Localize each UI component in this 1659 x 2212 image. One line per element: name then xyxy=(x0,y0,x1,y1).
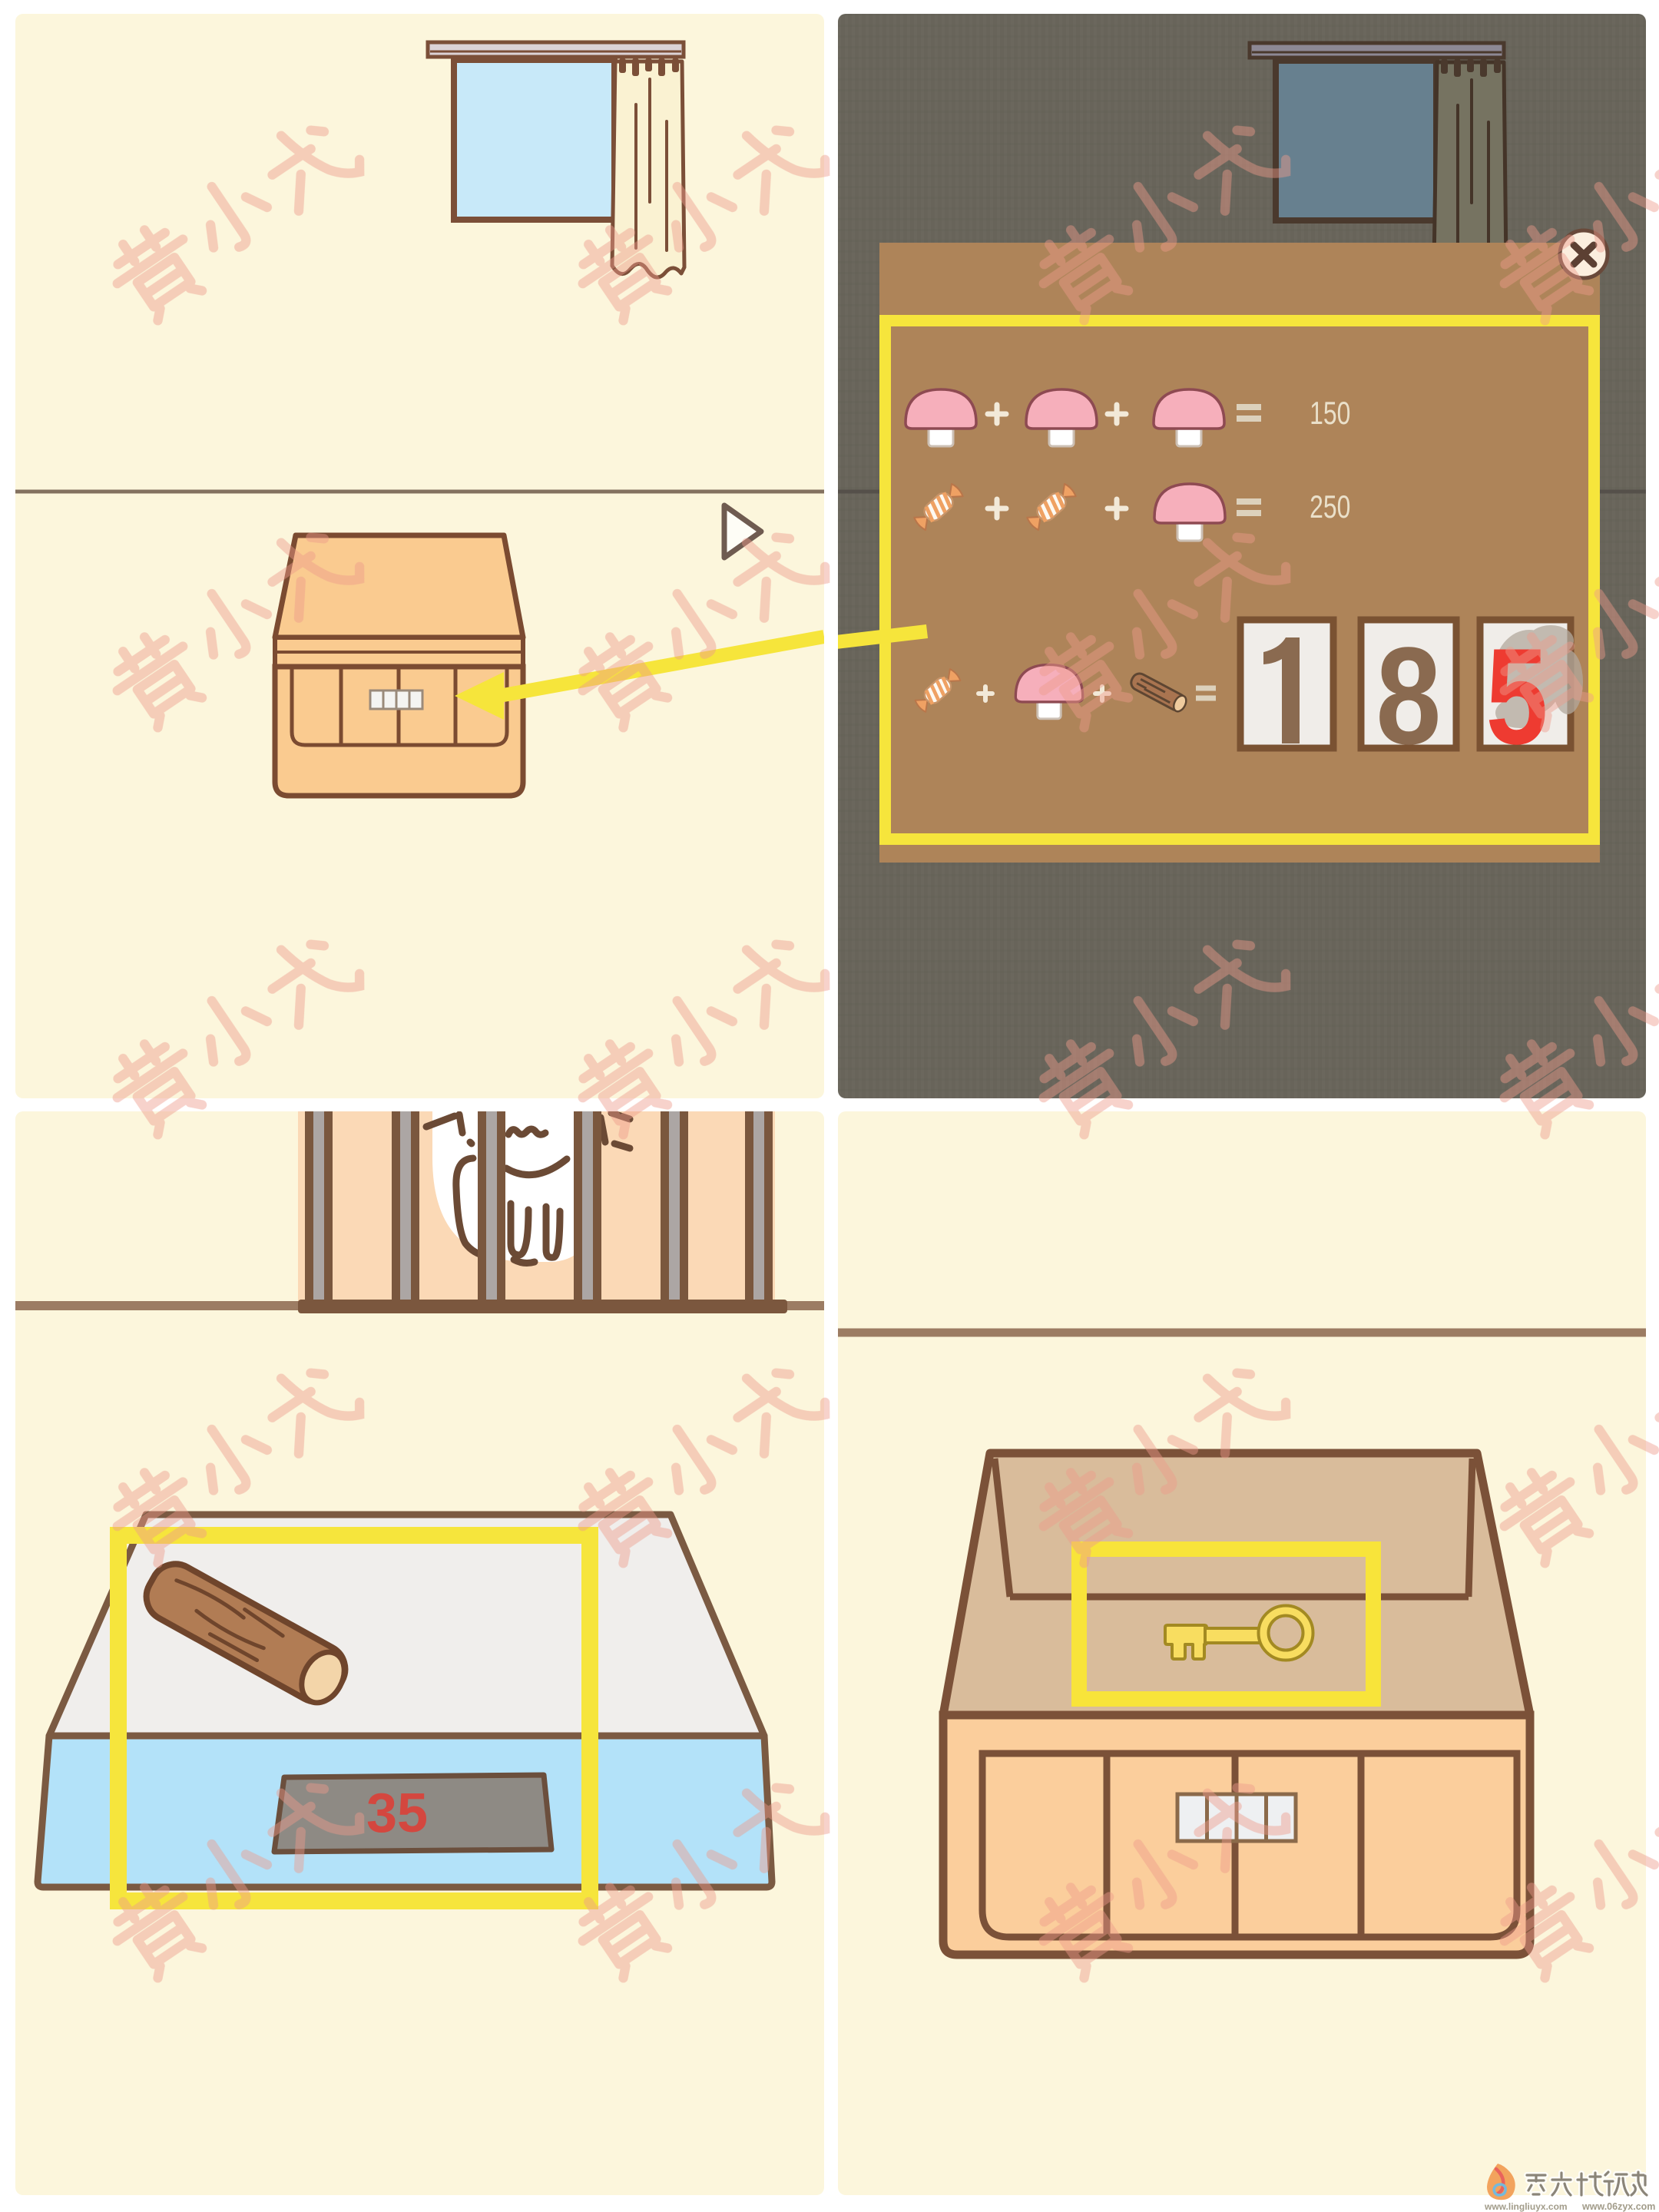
svg-text:8: 8 xyxy=(1376,619,1441,773)
svg-text:www.06zyx.com: www.06zyx.com xyxy=(1581,2201,1655,2212)
svg-text:5: 5 xyxy=(1485,621,1548,773)
svg-text:35: 35 xyxy=(366,1783,428,1844)
svg-text:250: 250 xyxy=(1310,488,1350,525)
svg-text:150: 150 xyxy=(1310,395,1350,431)
svg-text:www.lingliuyx.com: www.lingliuyx.com xyxy=(1484,2201,1568,2212)
